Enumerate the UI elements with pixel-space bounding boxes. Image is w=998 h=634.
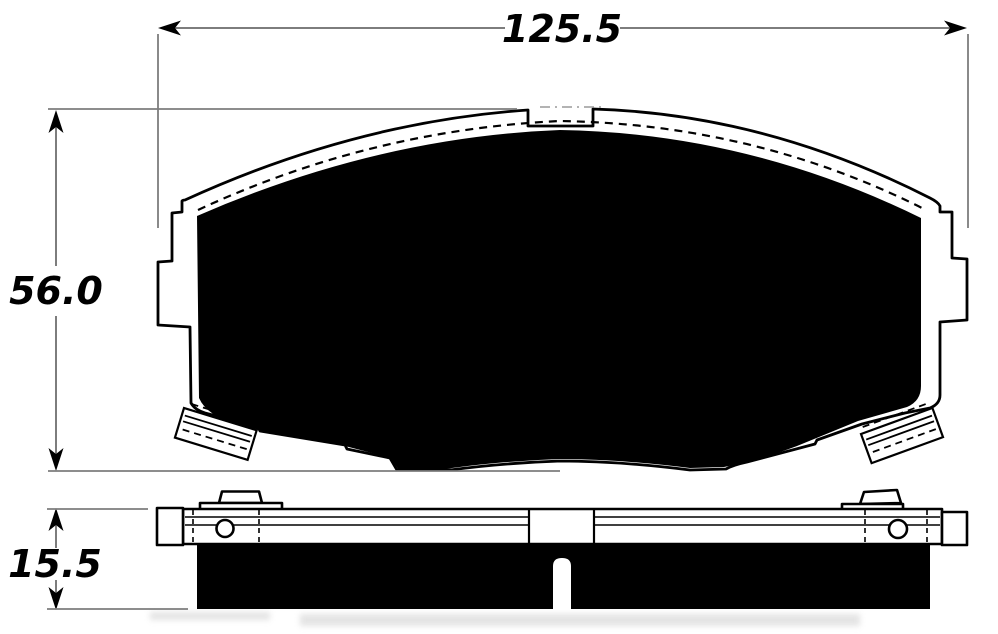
side-backing-plate [183, 509, 942, 544]
right-boss [860, 490, 901, 504]
scan-shadow [150, 612, 270, 620]
brake-pad-technical-drawing: 125.5 56.0 15.5 [0, 0, 998, 634]
dim-thickness-label: 15.5 [8, 542, 102, 586]
left-boss [219, 492, 262, 504]
front-view [158, 107, 967, 470]
rivet-hole-right [889, 520, 907, 538]
friction-center-slot [553, 558, 571, 610]
friction-material [197, 130, 921, 469]
drawing-svg: 125.5 56.0 15.5 [0, 0, 998, 634]
left-end-cap [157, 508, 183, 545]
dim-width-label: 125.5 [502, 7, 622, 51]
scan-shadow [300, 614, 860, 626]
dim-height-label: 56.0 [9, 269, 103, 313]
rivet-hole-left [217, 520, 234, 537]
side-view [150, 490, 967, 626]
right-end-cap [942, 512, 967, 545]
